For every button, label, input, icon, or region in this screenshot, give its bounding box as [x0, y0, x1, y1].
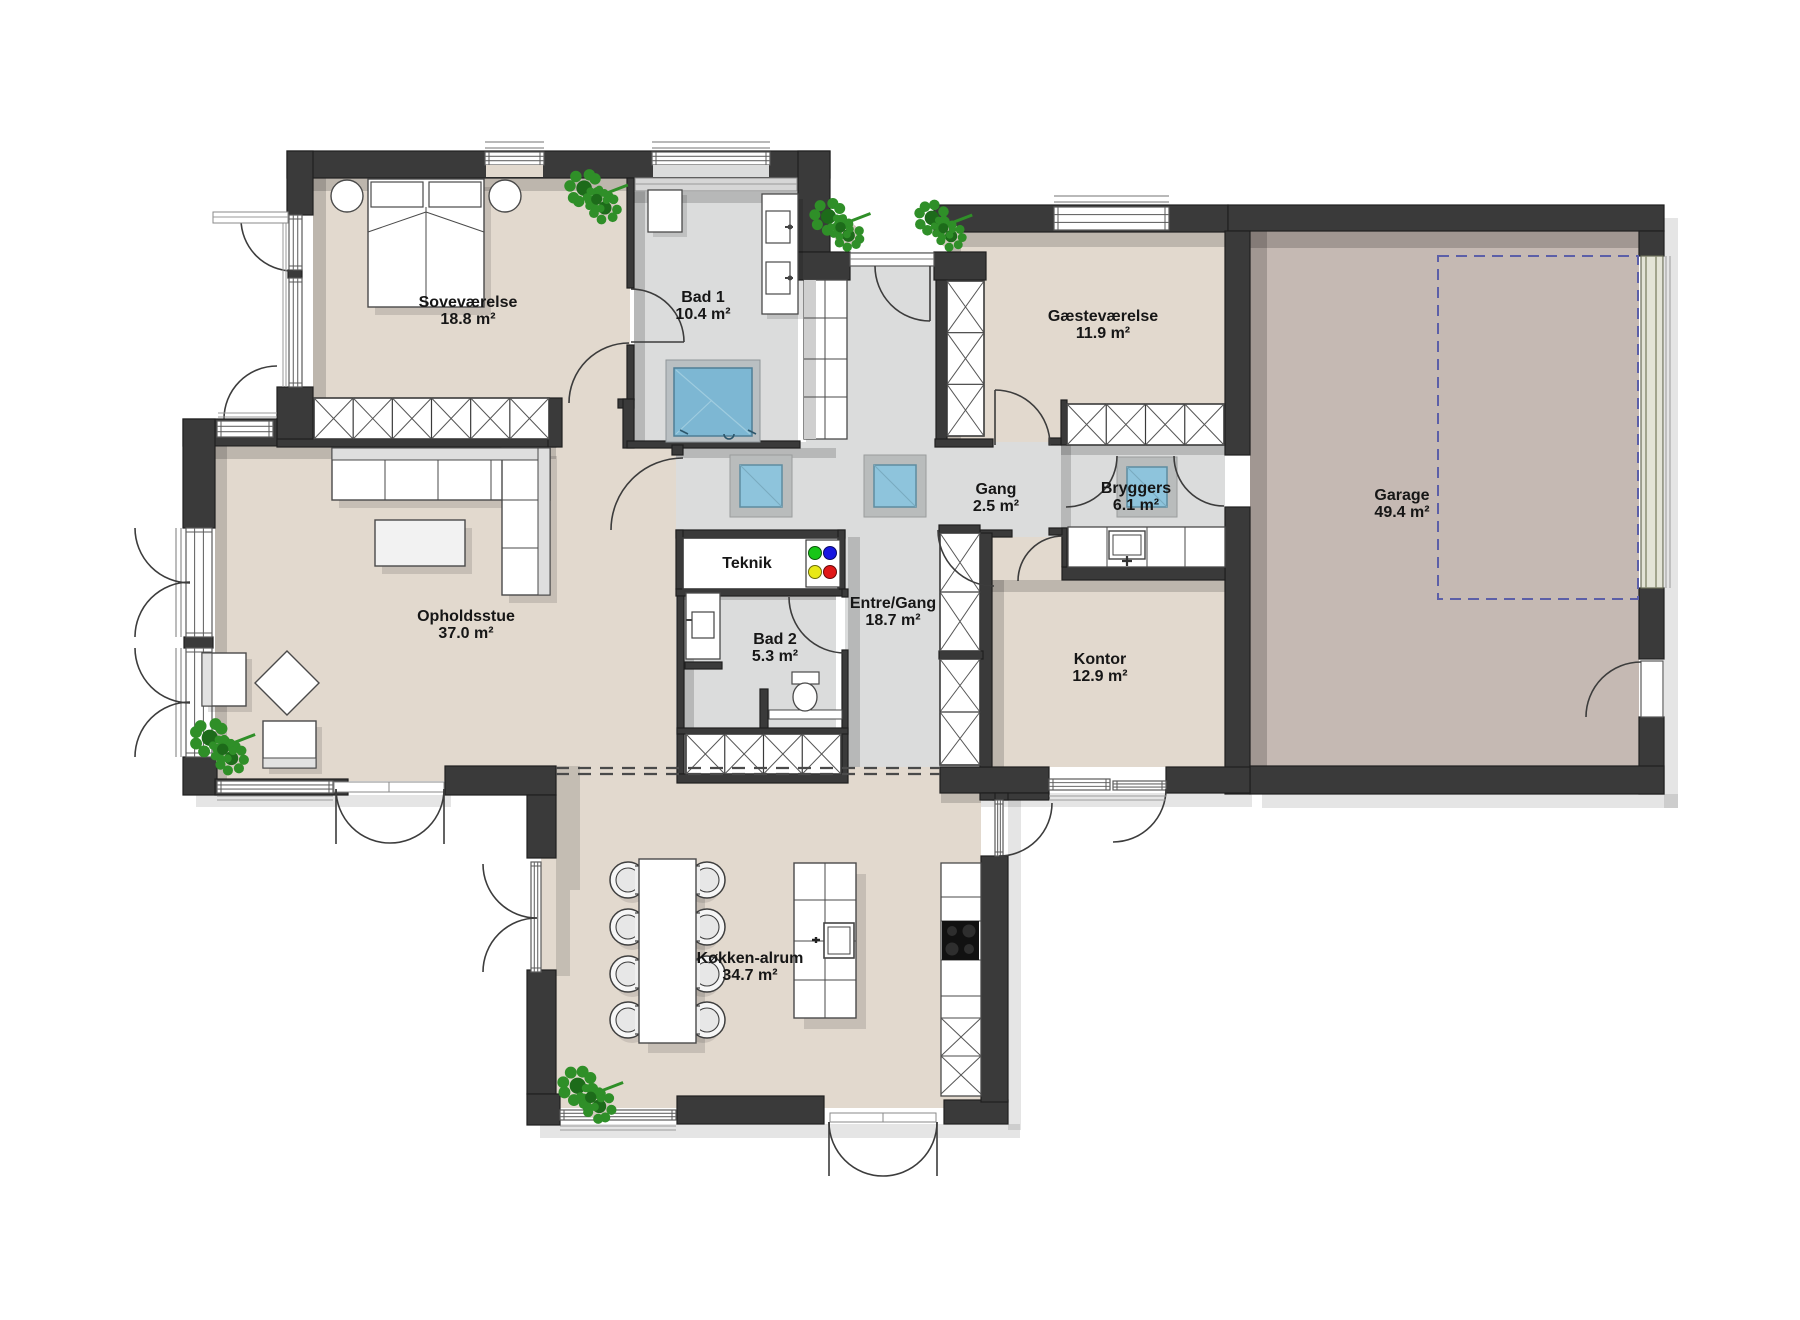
- svg-text:5.3 m²: 5.3 m²: [752, 648, 798, 665]
- svg-text:6.1 m²: 6.1 m²: [1113, 497, 1159, 514]
- svg-text:Garage: Garage: [1374, 487, 1429, 504]
- svg-text:49.4 m²: 49.4 m²: [1374, 504, 1429, 521]
- svg-text:Entre/Gang: Entre/Gang: [850, 595, 936, 612]
- svg-text:37.0 m²: 37.0 m²: [438, 625, 493, 642]
- svg-text:Teknik: Teknik: [722, 555, 772, 572]
- svg-text:Kontor: Kontor: [1074, 651, 1126, 668]
- svg-text:Opholdsstue: Opholdsstue: [417, 608, 515, 625]
- svg-text:18.8 m²: 18.8 m²: [440, 311, 495, 328]
- svg-text:10.4 m²: 10.4 m²: [675, 306, 730, 323]
- svg-text:18.7 m²: 18.7 m²: [865, 612, 920, 629]
- svg-text:11.9 m²: 11.9 m²: [1076, 325, 1130, 342]
- svg-text:Soveværelse: Soveværelse: [419, 294, 518, 311]
- svg-text:Bad 2: Bad 2: [753, 631, 797, 648]
- svg-text:12.9 m²: 12.9 m²: [1072, 668, 1127, 685]
- svg-text:Køkken-alrum: Køkken-alrum: [697, 950, 804, 967]
- svg-text:Gæsteværelse: Gæsteværelse: [1048, 308, 1158, 325]
- svg-text:Gang: Gang: [976, 481, 1017, 498]
- svg-text:34.7 m²: 34.7 m²: [722, 967, 777, 984]
- svg-text:2.5 m²: 2.5 m²: [973, 498, 1019, 515]
- svg-text:Bryggers: Bryggers: [1101, 480, 1171, 497]
- svg-text:Bad 1: Bad 1: [681, 289, 725, 306]
